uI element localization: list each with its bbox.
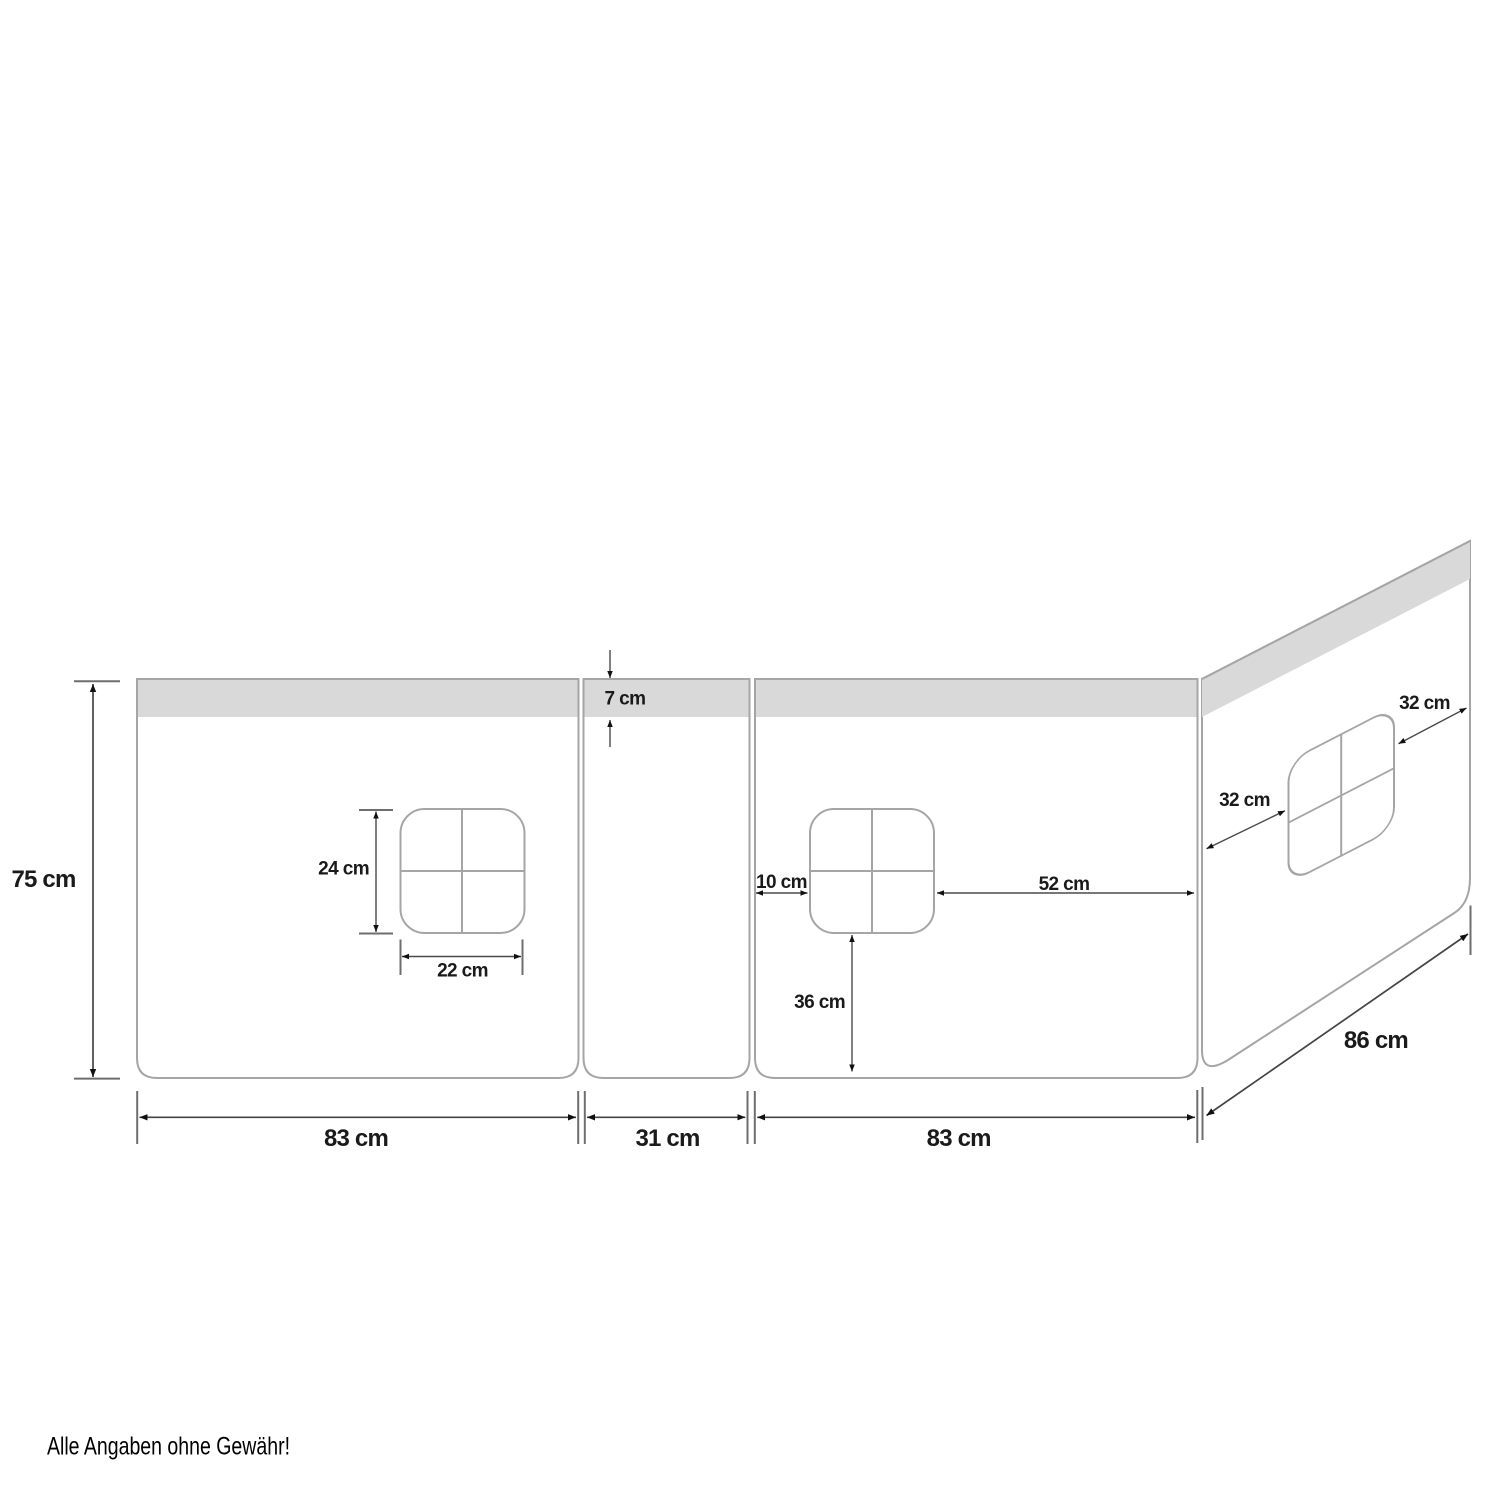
svg-text:83 cm: 83 cm (324, 1125, 388, 1152)
svg-text:10 cm: 10 cm (756, 872, 807, 893)
svg-text:83 cm: 83 cm (927, 1125, 991, 1152)
svg-text:86 cm: 86 cm (1344, 1027, 1408, 1054)
svg-text:75 cm: 75 cm (11, 866, 75, 893)
svg-text:52 cm: 52 cm (1039, 874, 1090, 895)
svg-text:31 cm: 31 cm (635, 1125, 699, 1152)
svg-text:22 cm: 22 cm (437, 961, 488, 982)
svg-text:36 cm: 36 cm (794, 992, 845, 1013)
svg-text:32 cm: 32 cm (1219, 790, 1270, 811)
svg-text:24 cm: 24 cm (318, 859, 369, 880)
svg-text:32 cm: 32 cm (1399, 693, 1450, 714)
svg-text:7 cm: 7 cm (605, 689, 646, 710)
svg-text:Alle Angaben ohne Gewähr!: Alle Angaben ohne Gewähr! (47, 1433, 290, 1461)
